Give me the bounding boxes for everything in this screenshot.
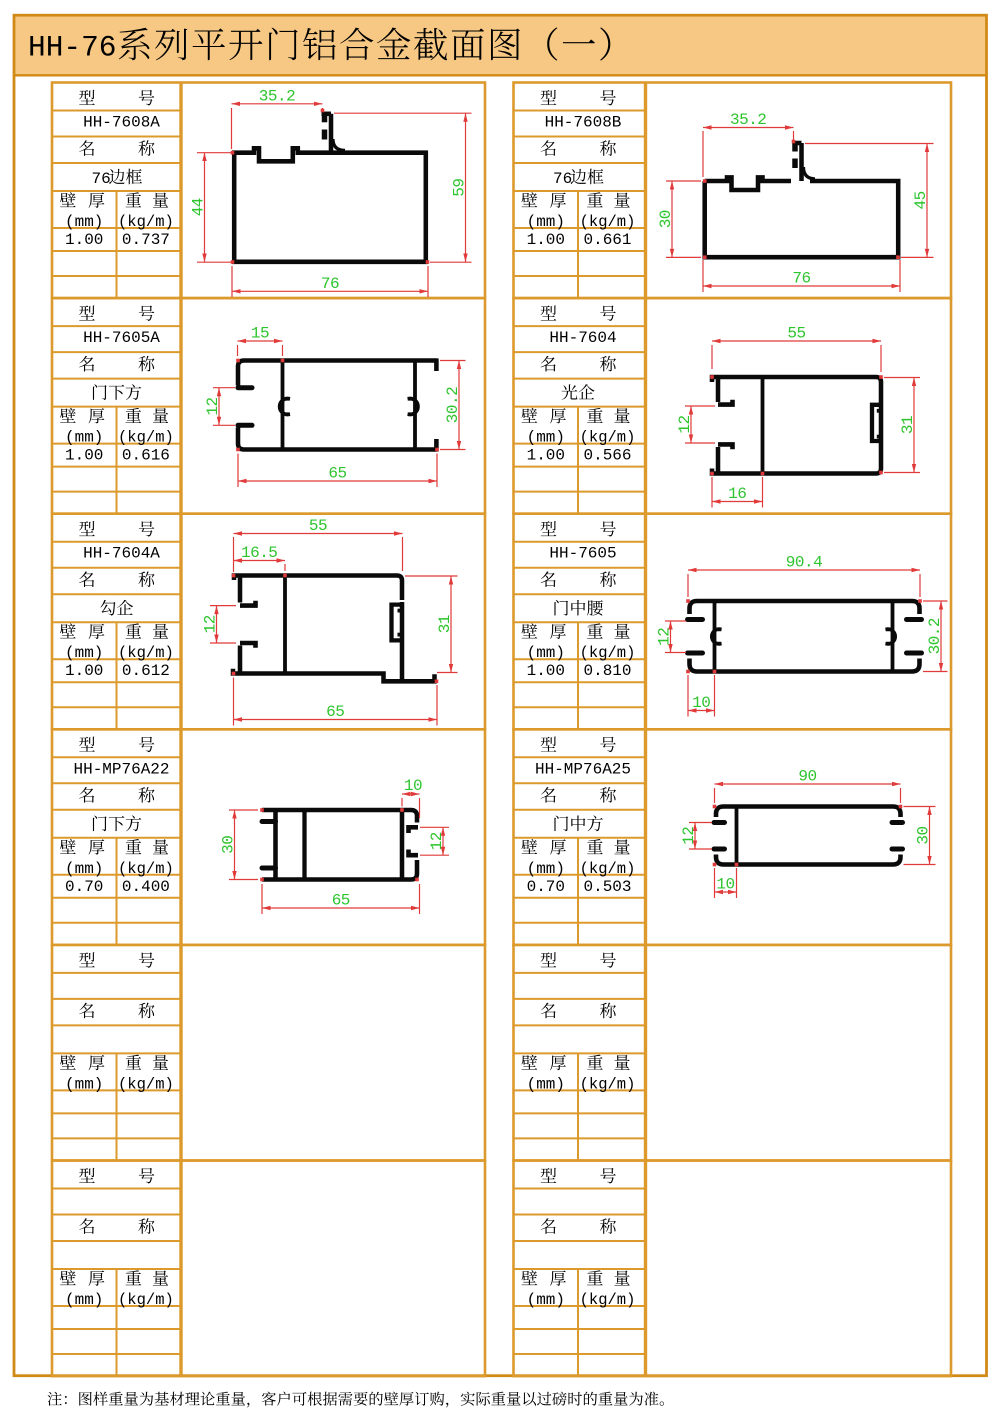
- svg-text:0.810: 0.810: [583, 662, 631, 680]
- svg-text:10: 10: [716, 876, 734, 894]
- svg-text:45: 45: [912, 191, 930, 209]
- svg-text:12: 12: [680, 827, 698, 845]
- svg-text:44: 44: [190, 198, 208, 216]
- svg-text:(mm): (mm): [527, 1075, 565, 1093]
- svg-text:0.661: 0.661: [583, 231, 631, 249]
- svg-text:31: 31: [436, 615, 454, 633]
- svg-text:12: 12: [676, 415, 694, 433]
- svg-text:HH-7604A: HH-7604A: [83, 545, 160, 563]
- svg-text:35.2: 35.2: [730, 111, 766, 129]
- svg-text:(mm): (mm): [65, 644, 103, 662]
- svg-text:HH-7604: HH-7604: [549, 329, 616, 347]
- svg-text:(mm): (mm): [527, 1291, 565, 1309]
- svg-text:0.737: 0.737: [122, 231, 170, 249]
- svg-text:HH-7605: HH-7605: [549, 545, 616, 563]
- svg-text:90.4: 90.4: [786, 554, 822, 572]
- svg-text:1.00: 1.00: [527, 447, 565, 465]
- svg-text:(mm): (mm): [527, 860, 565, 878]
- svg-text:HH-7605A: HH-7605A: [83, 329, 160, 347]
- svg-text:1.00: 1.00: [65, 447, 103, 465]
- svg-text:(mm): (mm): [527, 213, 565, 231]
- svg-text:1.00: 1.00: [65, 662, 103, 680]
- svg-text:16: 16: [728, 485, 746, 503]
- svg-text:0.616: 0.616: [122, 447, 170, 465]
- svg-text:12: 12: [656, 628, 674, 646]
- svg-text:HH-MP76A25: HH-MP76A25: [535, 760, 631, 778]
- svg-text:30: 30: [915, 826, 933, 844]
- svg-text:HH-76: HH-76: [28, 31, 117, 65]
- svg-text:(kg/m): (kg/m): [118, 644, 174, 662]
- svg-text:0.612: 0.612: [122, 662, 170, 680]
- svg-text:(kg/m): (kg/m): [118, 1075, 174, 1093]
- svg-text:76: 76: [792, 270, 810, 288]
- svg-text:65: 65: [328, 465, 346, 483]
- svg-text:1.00: 1.00: [527, 662, 565, 680]
- svg-text:(mm): (mm): [65, 1075, 103, 1093]
- svg-text:(kg/m): (kg/m): [118, 213, 174, 231]
- svg-text:(kg/m): (kg/m): [580, 860, 636, 878]
- svg-text:HH-7608A: HH-7608A: [83, 114, 160, 132]
- svg-text:35.2: 35.2: [259, 87, 295, 105]
- svg-text:12: 12: [428, 832, 446, 850]
- svg-text:HH-7608B: HH-7608B: [545, 114, 622, 132]
- svg-text:HH-MP76A22: HH-MP76A22: [73, 760, 169, 778]
- svg-text:55: 55: [309, 517, 327, 535]
- svg-text:(mm): (mm): [527, 644, 565, 662]
- svg-text:76: 76: [92, 170, 111, 188]
- svg-text:1.00: 1.00: [65, 231, 103, 249]
- svg-text:(kg/m): (kg/m): [118, 1291, 174, 1309]
- svg-text:30: 30: [657, 210, 675, 228]
- svg-text:12: 12: [202, 615, 220, 633]
- svg-text:30.2: 30.2: [926, 618, 944, 654]
- svg-text:0.503: 0.503: [583, 878, 631, 896]
- svg-text:65: 65: [332, 892, 350, 910]
- svg-text:12: 12: [204, 397, 222, 415]
- svg-text:10: 10: [404, 777, 422, 795]
- svg-text:(kg/m): (kg/m): [118, 429, 174, 447]
- svg-text:(mm): (mm): [527, 429, 565, 447]
- svg-text:(mm): (mm): [65, 213, 103, 231]
- svg-text:(mm): (mm): [65, 860, 103, 878]
- svg-text:10: 10: [692, 694, 710, 712]
- svg-text:65: 65: [326, 703, 344, 721]
- svg-text:0.400: 0.400: [122, 878, 170, 896]
- svg-text:16.5: 16.5: [241, 544, 277, 562]
- svg-text:59: 59: [451, 178, 469, 196]
- svg-text:90: 90: [798, 768, 816, 786]
- svg-text:(mm): (mm): [65, 1291, 103, 1309]
- svg-text:0.70: 0.70: [65, 878, 103, 896]
- svg-text:(kg/m): (kg/m): [580, 429, 636, 447]
- svg-text:0.566: 0.566: [583, 447, 631, 465]
- svg-text:30.2: 30.2: [444, 387, 462, 423]
- svg-text:1.00: 1.00: [527, 231, 565, 249]
- svg-text:55: 55: [787, 325, 805, 343]
- svg-text:(mm): (mm): [65, 429, 103, 447]
- svg-text:(kg/m): (kg/m): [580, 1075, 636, 1093]
- svg-text:(kg/m): (kg/m): [580, 1291, 636, 1309]
- svg-text:0.70: 0.70: [527, 878, 565, 896]
- svg-text:(kg/m): (kg/m): [580, 213, 636, 231]
- svg-text:(kg/m): (kg/m): [580, 644, 636, 662]
- svg-text:30: 30: [220, 836, 238, 854]
- svg-text:15: 15: [251, 325, 269, 343]
- svg-text:31: 31: [899, 416, 917, 434]
- svg-text:76: 76: [321, 275, 339, 293]
- svg-text:76: 76: [553, 170, 572, 188]
- svg-text:(kg/m): (kg/m): [118, 860, 174, 878]
